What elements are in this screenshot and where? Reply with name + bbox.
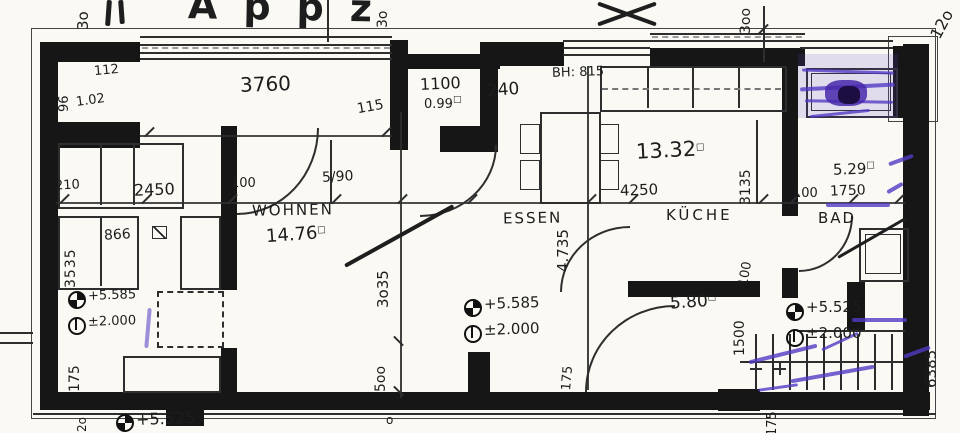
dim-door-590: 5/90 <box>322 169 354 185</box>
dim-4735: 4.735 <box>556 272 599 287</box>
stair-hash <box>779 363 781 375</box>
wardrobe-upper <box>58 143 184 209</box>
dim-112: 112 <box>93 63 119 78</box>
chair <box>599 124 619 154</box>
sqm-symbol: □ <box>707 292 716 303</box>
level-bad-lower: ±2.000 <box>806 326 862 341</box>
window-living-line-4 <box>140 58 392 60</box>
window-living-speckle <box>142 47 390 49</box>
window-living-line-1 <box>140 36 392 38</box>
bad-area-value: 5.29 <box>833 160 867 179</box>
room-label-essen: ESSEN <box>503 210 562 226</box>
wohnen-area-value: 14.76 <box>265 223 318 248</box>
area-label-bad: 5.29□ <box>833 161 875 177</box>
balcony-line-2 <box>0 342 33 344</box>
ref-line-title <box>327 0 329 42</box>
wall-stair-left-jamb <box>718 389 760 411</box>
pillar-lower <box>221 348 237 396</box>
dim-100-bad: 100 <box>793 187 818 200</box>
chair <box>520 160 540 190</box>
level-bottom: +5.525 <box>136 410 196 428</box>
wall-left <box>40 42 58 410</box>
sqm-symbol: □ <box>317 225 326 236</box>
kitchen-counter-depth-line <box>602 88 781 90</box>
dim-500: 5oo <box>374 392 400 406</box>
level-circle-icon <box>464 325 482 343</box>
balcony-line-1 <box>0 332 33 334</box>
level-bad-upper: +5.525 <box>806 300 862 315</box>
window-kueche-speckle <box>652 36 802 38</box>
area-label-kueche: 13.32□ <box>635 138 705 163</box>
level-benchmark-icon <box>116 414 134 432</box>
dim-96: 96 <box>58 112 75 125</box>
window-essen-line-1 <box>563 40 650 42</box>
dim-1500: 1500 <box>733 356 769 370</box>
flur-area-value: 5.80 <box>669 291 708 314</box>
floor-plan-scan: Appz <box>0 0 960 433</box>
level-benchmark-icon <box>786 303 804 321</box>
sqm-symbol: □ <box>696 142 705 152</box>
room-label-bad: BAD <box>818 211 856 226</box>
sqm-symbol: □ <box>866 160 875 170</box>
room-label-wohnen: WOHNEN <box>252 202 334 218</box>
dim-30-mid: 3o <box>376 28 393 42</box>
dim-3135: 3135 <box>739 205 775 219</box>
window-essen-line-3 <box>563 54 650 56</box>
level-circle-icon <box>68 317 86 335</box>
dim-30-left: 3o <box>76 30 95 45</box>
wall-kueche-top <box>650 48 805 66</box>
area-label-wohnen: 14.76□ <box>265 224 326 246</box>
purple-underline-1750 <box>826 203 890 207</box>
area-label-flur: 5.80□ <box>669 292 716 312</box>
pillar-bottom-center <box>468 352 490 404</box>
dim-2450: 2450 <box>134 181 175 198</box>
pillar-upper <box>221 126 237 290</box>
wardrobe-divider <box>100 143 102 205</box>
dim-3035: 3o35 <box>376 308 414 323</box>
kitchen-counter-divider <box>692 66 694 108</box>
dim-210: 210 <box>55 178 80 192</box>
dim-100-wohnen: 100 <box>231 177 256 190</box>
window-essen-line-2 <box>563 47 650 49</box>
ref-line-center <box>400 112 402 398</box>
o-mark: o <box>386 414 393 426</box>
dim-3760: 3760 <box>240 73 292 95</box>
dim-wc-1100: 1100 <box>420 75 462 93</box>
level-left-lower: ±2.000 <box>88 314 137 329</box>
purple-stair-line <box>852 318 907 322</box>
window-kueche-line-1 <box>650 33 805 35</box>
sqm-symbol: □ <box>453 95 462 105</box>
wardrobe-divider <box>100 216 102 286</box>
level-benchmark-icon <box>464 299 482 317</box>
kitchen-counter-divider <box>738 66 740 108</box>
purple-blob-dark <box>838 86 860 104</box>
dim-6385: 6385 <box>924 388 960 403</box>
dim-866: 866 <box>104 227 131 242</box>
level-left-upper: +5.585 <box>88 288 137 303</box>
chair <box>599 160 619 190</box>
dim-4250: 4250 <box>620 182 659 198</box>
dim-102: 1.02 <box>75 92 105 109</box>
window-living-line-2 <box>140 44 392 46</box>
dashed-fixture <box>157 291 224 348</box>
dining-table <box>540 112 601 204</box>
window-kueche-line-2 <box>650 40 805 42</box>
dim-120: 12o <box>928 7 956 41</box>
wc-area-value: 0.99 <box>424 97 453 112</box>
dim-240: 240 <box>486 81 520 100</box>
dim-300: 3oo <box>739 34 765 48</box>
dim-bh815: BH: 815 <box>552 65 604 80</box>
wall-bad-left-lower <box>782 268 798 298</box>
area-label-wc: 0.99□ <box>424 96 461 111</box>
sideboard <box>123 356 221 393</box>
level-circle-icon <box>786 329 804 347</box>
kueche-area-value: 13.32 <box>635 137 696 164</box>
dim-175-left: 175 <box>68 392 95 406</box>
title-stroke-1 <box>105 0 112 26</box>
dim-1750: 1750 <box>830 183 866 198</box>
window-living-line-3 <box>140 52 392 54</box>
level-essen-upper: +5.585 <box>484 295 540 312</box>
kitchen-counter-divider <box>647 66 649 108</box>
level-essen-lower: ±2.000 <box>484 321 540 338</box>
cabinet <box>180 216 221 290</box>
dim-line-3135 <box>756 120 758 204</box>
wall-essen-top <box>480 42 564 66</box>
window-bad-line-2 <box>800 47 893 49</box>
dim-175-flur: 175 <box>560 365 575 391</box>
detail-flag <box>152 226 167 239</box>
title-fragment: Appz <box>188 0 399 28</box>
chair <box>520 124 540 154</box>
window-bad-line-1 <box>800 40 893 42</box>
title-stroke-2 <box>118 0 125 24</box>
room-label-kueche: KÜCHE <box>666 208 733 223</box>
